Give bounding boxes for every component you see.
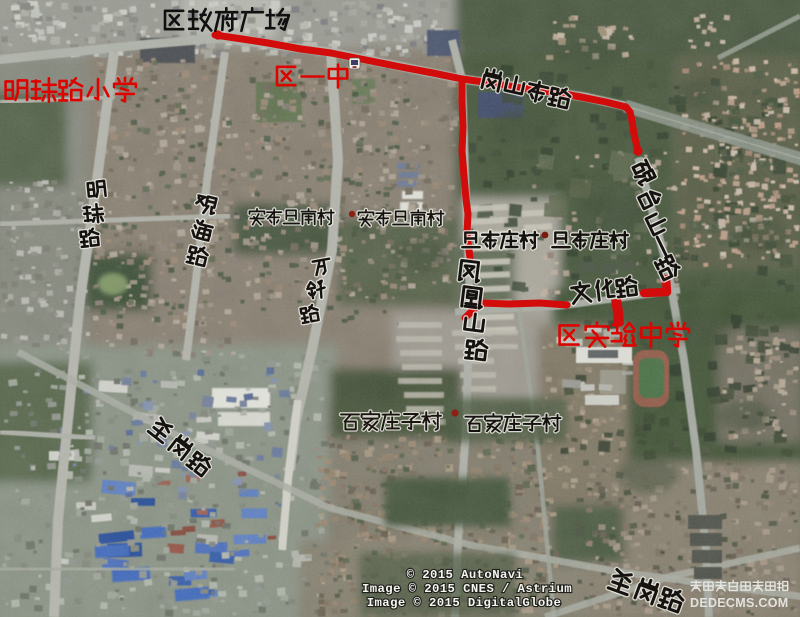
svg-text:Image © 2015 DigitalGlobe: Image © 2015 DigitalGlobe — [367, 596, 561, 610]
svg-text:Image © 2015 CNES / Astrium: Image © 2015 CNES / Astrium — [362, 582, 572, 596]
svg-text:© 2015 AutoNavi: © 2015 AutoNavi — [407, 568, 524, 582]
svg-text:DEDECMS.COM: DEDECMS.COM — [690, 596, 788, 610]
